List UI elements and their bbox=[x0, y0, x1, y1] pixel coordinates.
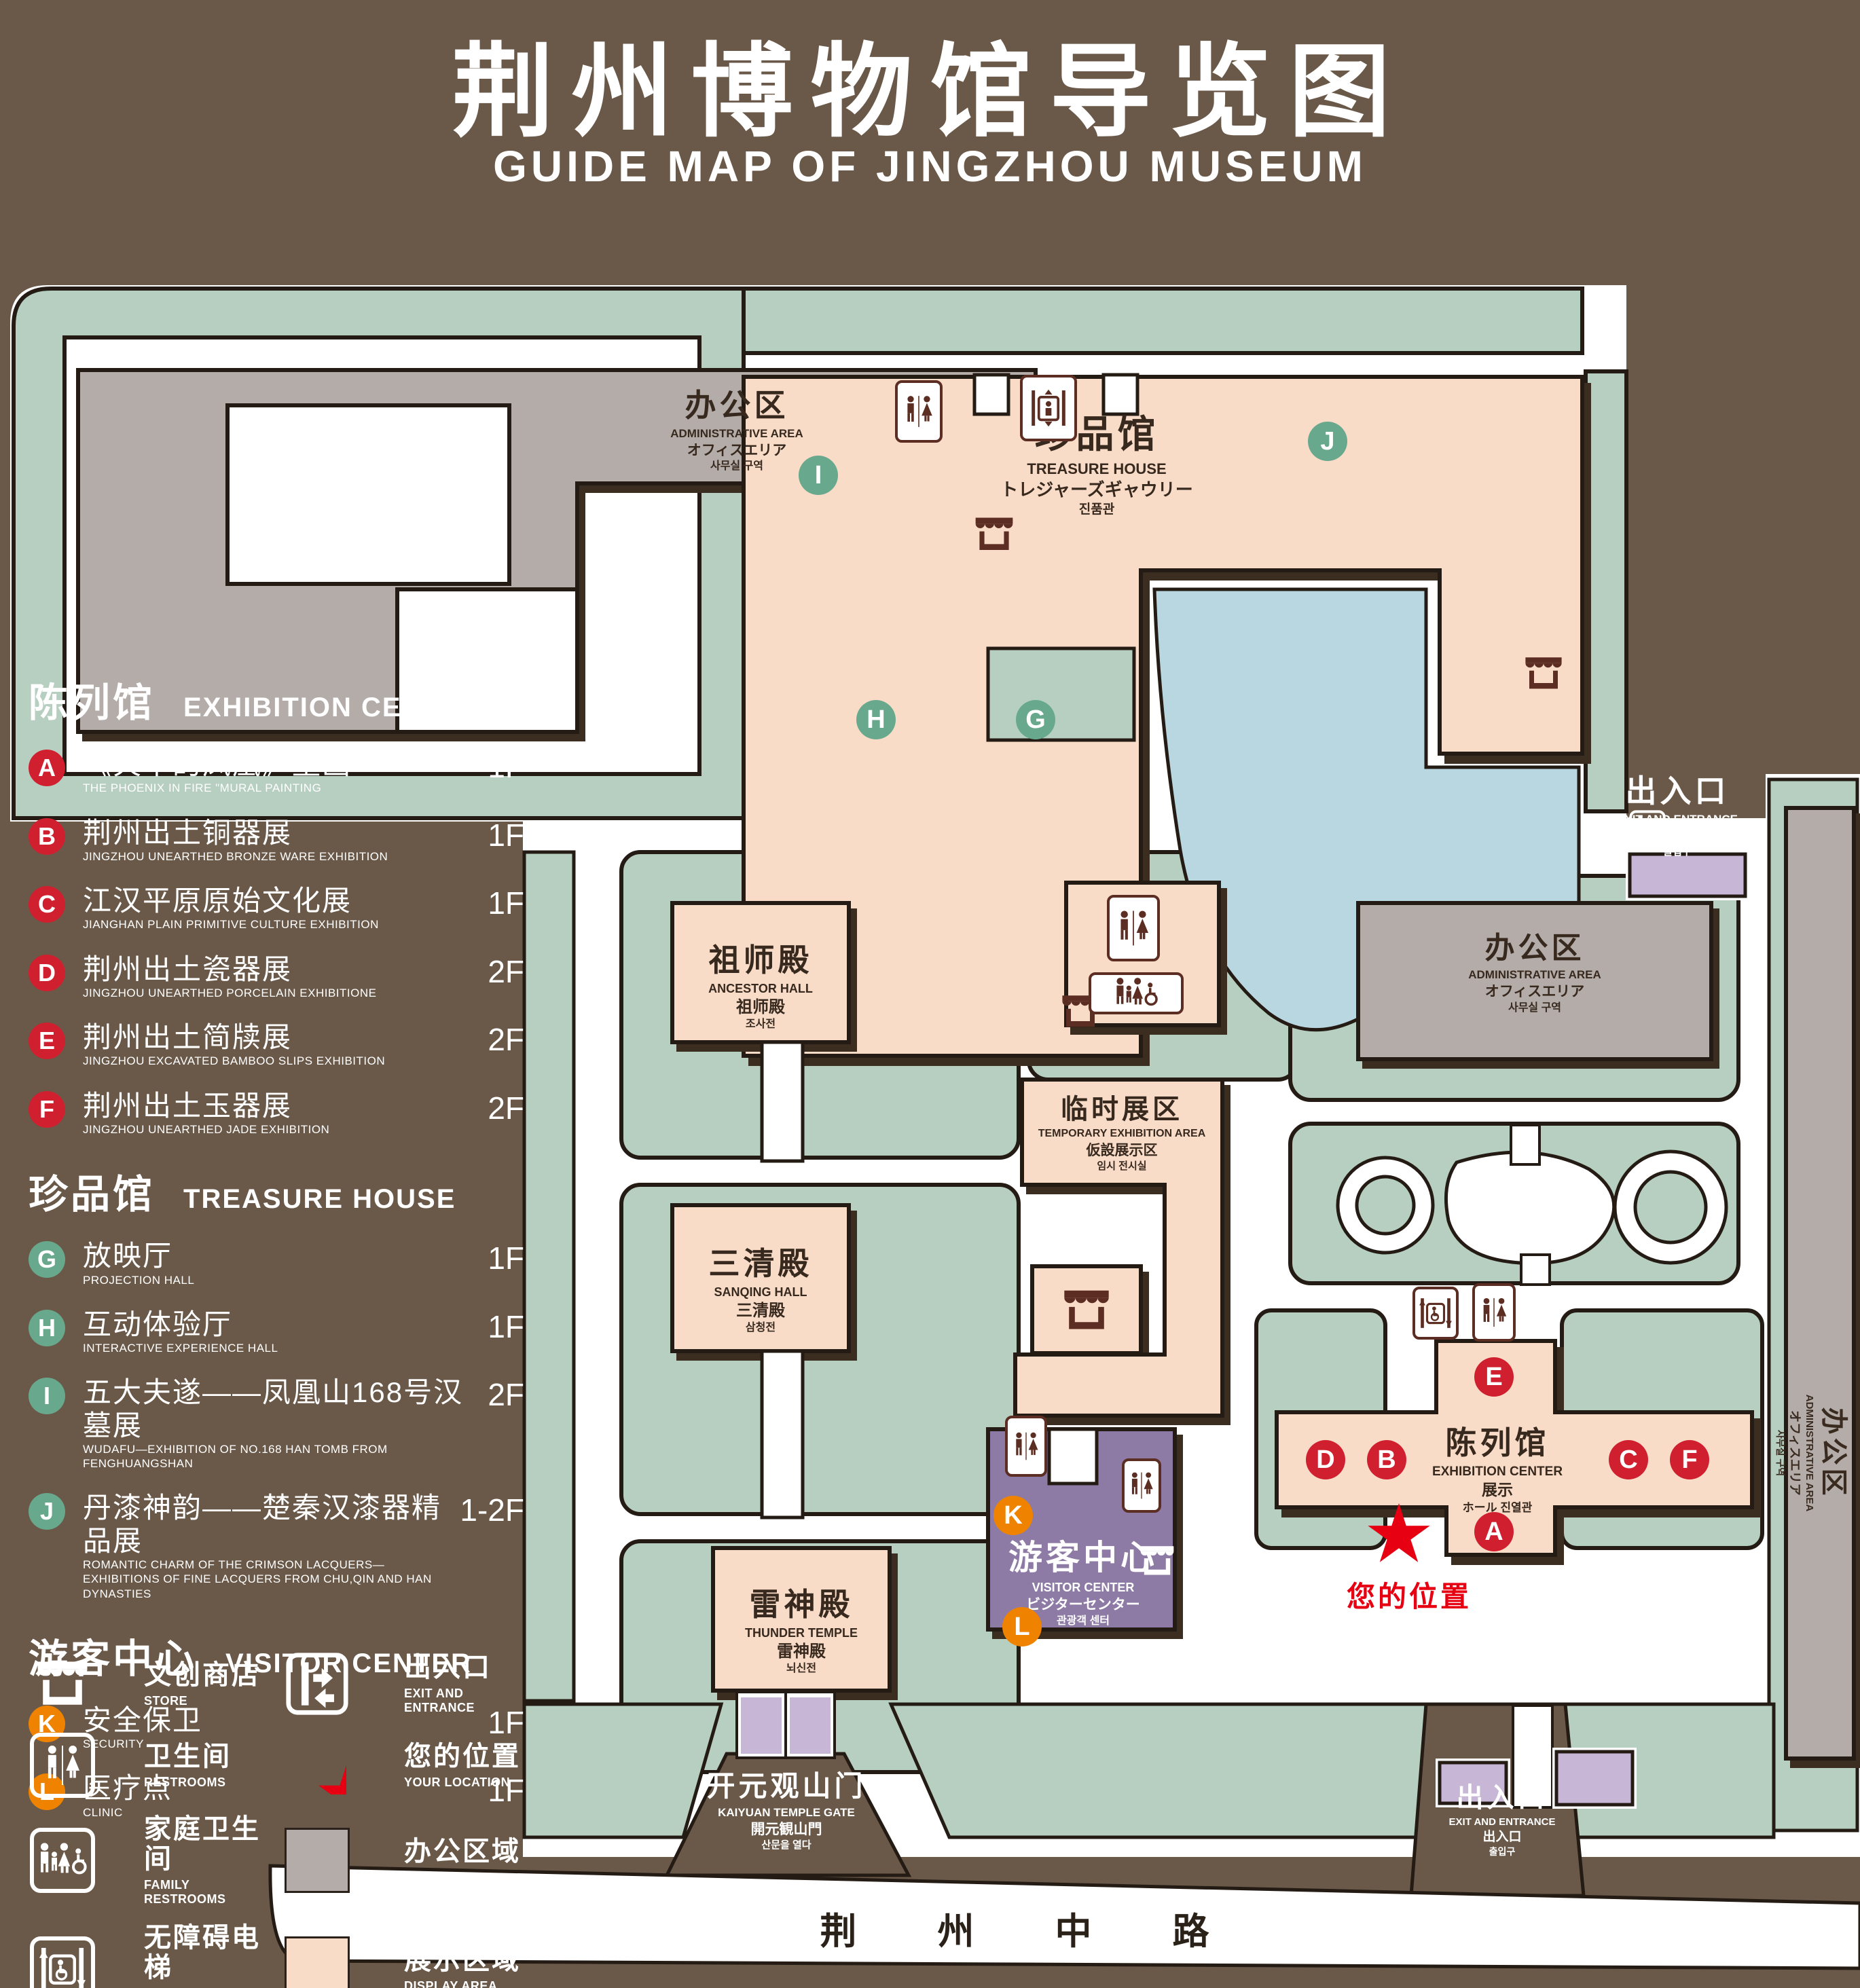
restrooms-label: 卫生间RESTROOMS bbox=[144, 1742, 271, 1790]
treasure-store-icon-1 bbox=[970, 506, 1019, 563]
legend-symbols: 文创商店STORE 出入口EXIT AND ENTRANCE 卫生间RESTRO… bbox=[29, 1651, 531, 1988]
admin-topleft-label: 办公区 ADMINISTRATIVE AREA オフィスエリア 사무실 구역 bbox=[670, 386, 803, 474]
right-exit-pad bbox=[1630, 854, 1745, 896]
legend-item-e: E 荆州出土简牍展JINGZHOU EXCAVATED BAMBOO SLIPS… bbox=[29, 1021, 524, 1069]
temporary-exhibition-label: 临时展区 TEMPORARY EXHIBITION AREA 仮設展示区 임시 … bbox=[1038, 1092, 1206, 1173]
legend-item-c: C 江汉平原原始文化展JIANGHAN PLAIN PRIMITIVE CULT… bbox=[29, 885, 524, 932]
marker-l: L bbox=[1002, 1607, 1042, 1646]
road-name: 荆 州 中 路 bbox=[820, 1901, 1244, 1955]
temporary-store-icon bbox=[1051, 1285, 1122, 1336]
legend-item-j: J 丹漆神韵——楚秦汉漆器精品展ROMANTIC CHARM OF THE CR… bbox=[29, 1492, 524, 1600]
legend-section-exhibition: 陈列馆 EXHIBITION CENTER bbox=[29, 671, 524, 728]
marker-a: A bbox=[1474, 1512, 1514, 1551]
store-icon bbox=[29, 1651, 96, 1716]
exhibition-center-label: 陈列馆 EXHIBITION CENTER 展示 ホール 진열관 bbox=[1432, 1423, 1563, 1515]
green-band-top bbox=[744, 289, 1582, 353]
legend-item-a: A 《火中的凤凰》壁画THE PHOENIX IN FIRE "MURAL PA… bbox=[29, 748, 524, 796]
marker-k: K bbox=[993, 1496, 1033, 1535]
thunder-temple-label: 雷神殿 THUNDER TEMPLE 雷神殿 뇌신전 bbox=[745, 1585, 858, 1676]
your-location-label: 您的位置YOUR LOCATION bbox=[404, 1742, 531, 1790]
exit-label: 出入口EXIT AND ENTRANCE bbox=[404, 1653, 531, 1715]
store-label: 文创商店STORE bbox=[144, 1660, 271, 1708]
visitor-restrooms bbox=[1122, 1458, 1161, 1513]
garden-island-west bbox=[1357, 1177, 1414, 1234]
marker-c: C bbox=[1609, 1440, 1648, 1479]
exhibition-restrooms bbox=[1472, 1283, 1516, 1342]
admin-right-label: 办公区 ADMINISTRATIVE AREA オフィスエリア 사무실 구역 bbox=[1468, 929, 1601, 1015]
marker-j: J bbox=[1308, 422, 1347, 461]
location-star-icon bbox=[283, 1733, 351, 1798]
right-exit-icon bbox=[1628, 805, 1666, 851]
legend-item-h: H 互动体验厅INTERACTIVE EXPERIENCE HALL 1F bbox=[29, 1308, 524, 1356]
office-area-label: 办公区域OFFICE AREA bbox=[404, 1837, 531, 1885]
restrooms-icon bbox=[29, 1733, 96, 1798]
marker-b: B bbox=[1367, 1440, 1406, 1479]
court-path-1 bbox=[762, 1042, 803, 1161]
accessible-elevator-label: 无障碍电梯ACCESSIBLE ELEVATOR bbox=[144, 1923, 271, 1988]
legend-item-d: D 荆州出土瓷器展JINGZHOU UNEARTHED PORCELAIN EX… bbox=[29, 953, 524, 1001]
office-area-swatch bbox=[283, 1828, 351, 1893]
treasure-restrooms bbox=[895, 380, 943, 443]
treasure-roof-notch-1 bbox=[974, 375, 1008, 414]
your-location-text: 您的位置 bbox=[1347, 1574, 1472, 1615]
treasure-roof-notch-2 bbox=[1104, 375, 1137, 414]
ancestor-hall-label: 祖师殿 ANCESTOR HALL 祖师殿 조사전 bbox=[708, 940, 813, 1032]
legend-item-f: F 荆州出土玉器展JINGZHOU UNEARTHED JADE EXHIBIT… bbox=[29, 1090, 524, 1137]
marker-d: D bbox=[1306, 1440, 1345, 1479]
treasure-elevator bbox=[1020, 375, 1077, 441]
guide-map-poster: 荆州博物馆导览图 GUIDE MAP OF JINGZHOU MUSEUM bbox=[0, 0, 1860, 1988]
legend-section-treasure: 珍品馆 TREASURE HOUSE bbox=[29, 1162, 524, 1219]
gate-post1 bbox=[741, 1697, 782, 1754]
marker-f: F bbox=[1670, 1440, 1709, 1479]
family-restrooms-icon bbox=[29, 1828, 96, 1893]
green-strip-topright bbox=[1586, 371, 1626, 811]
south-wall-center bbox=[891, 1704, 1429, 1837]
family-restrooms-label: 家庭卫生间FAMILY RESTROOMS bbox=[144, 1814, 271, 1907]
garden-island-east bbox=[1635, 1172, 1706, 1242]
visitor-store-icon bbox=[1135, 1536, 1179, 1586]
marker-e: E bbox=[1474, 1357, 1514, 1397]
sanqing-hall-label: 三清殿 SANQING HALL 三清殿 삼청전 bbox=[709, 1244, 813, 1336]
legend-item-g: G 放映厅PROJECTION HALL 1F bbox=[29, 1240, 524, 1287]
treasure-inner-green bbox=[988, 648, 1134, 740]
display-area-swatch bbox=[283, 1936, 351, 1988]
visitor-west-restrooms bbox=[1005, 1416, 1047, 1477]
gate-post2 bbox=[790, 1697, 831, 1754]
garden-path-north bbox=[1511, 1125, 1539, 1164]
south-exit-label: 出入口 EXIT AND ENTRANCE 出入口 출입구 bbox=[1449, 1780, 1556, 1858]
court-path-2 bbox=[762, 1351, 803, 1517]
exit-icon bbox=[283, 1651, 351, 1716]
legend-item-b: B 荆州出土铜器展JINGZHOU UNEARTHED BRONZE WARE … bbox=[29, 817, 524, 864]
garden-path-center bbox=[1446, 1152, 1613, 1263]
court-family-restrooms bbox=[1089, 972, 1184, 1014]
marker-i: I bbox=[799, 456, 838, 495]
display-area-label: 展示区域DISPLAY AREA bbox=[404, 1945, 531, 1988]
green-strip-left bbox=[524, 852, 574, 1701]
exhibition-accessible-elevator bbox=[1412, 1287, 1459, 1340]
garden-path-south bbox=[1521, 1255, 1550, 1285]
kaiyuan-gate-label: 开元观山门 KAIYUAN TEMPLE GATE 開元観山門 산문을 열다 bbox=[706, 1768, 866, 1852]
admin-inner-courtyard-1 bbox=[227, 405, 509, 584]
marker-g: G bbox=[1016, 700, 1055, 739]
legend-item-i: I 五大夫遂——凤凰山168号汉墓展WUDAFU—EXHIBITION OF N… bbox=[29, 1376, 524, 1471]
accessible-elevator-icon bbox=[29, 1936, 96, 1988]
admin-strip-label: 办公区 ADMINISTRATIVE AREA オフィスエリア 사무실 구역 bbox=[1774, 1276, 1851, 1630]
treasure-store-icon-2 bbox=[1520, 645, 1567, 702]
court-restrooms bbox=[1107, 895, 1160, 961]
visitor-center-notch bbox=[1049, 1429, 1097, 1484]
south-exit-pad2 bbox=[1556, 1752, 1633, 1805]
marker-h: H bbox=[856, 700, 896, 739]
